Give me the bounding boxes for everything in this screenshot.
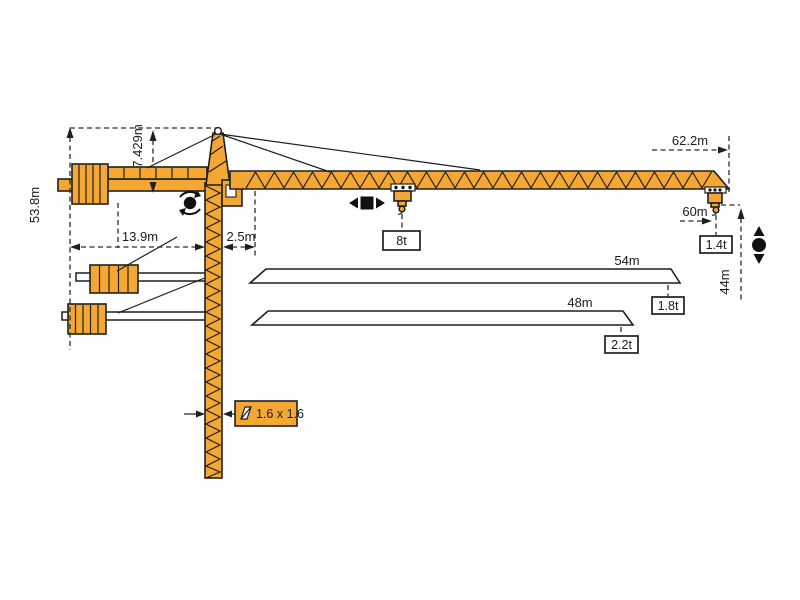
- slewing-arc-top: [180, 192, 197, 197]
- arrow-down: [754, 254, 765, 264]
- trolley-wheel: [401, 186, 404, 189]
- dim-label: 7.429m: [130, 124, 145, 167]
- jib-outline: [252, 311, 633, 325]
- trolley-body: [394, 191, 411, 201]
- trolley-wheel: [713, 188, 716, 191]
- jib-variant-54m: 54m 1.8t: [250, 253, 684, 314]
- trolley-wheel: [408, 186, 411, 189]
- hook: [713, 207, 719, 213]
- apex: [206, 133, 230, 185]
- counterweight-block: [68, 304, 106, 334]
- arrowhead-left: [223, 244, 233, 251]
- arrowhead-right: [195, 244, 205, 251]
- jib-length-label: 48m: [567, 295, 592, 310]
- trolley-wheel: [708, 188, 711, 191]
- hoisting-icon: [752, 226, 766, 264]
- arrowhead-up: [738, 208, 745, 219]
- square: [361, 197, 374, 210]
- trolley-mid: [391, 184, 415, 214]
- counter-jib-pendant: [147, 134, 216, 168]
- load-tip-max-jib: 1.4t: [700, 236, 732, 253]
- jib-variant-48m: 48m 2.2t: [252, 295, 638, 353]
- arrowhead-right: [718, 147, 728, 154]
- counter-jib-rail: [108, 167, 207, 179]
- load-label: 1.8t: [658, 299, 679, 313]
- dim-label: 53.8m: [27, 187, 42, 223]
- dim-label: 13.9m: [122, 229, 158, 244]
- hook: [399, 206, 405, 212]
- trolley-tip: [705, 187, 726, 215]
- arrowhead-left: [223, 411, 232, 418]
- arrowhead-left: [70, 244, 80, 251]
- arrowhead-right: [196, 411, 205, 418]
- counter-jib-variant-1: [76, 237, 206, 293]
- trolley-wheel: [718, 188, 721, 191]
- hook-tip: [398, 212, 402, 214]
- trolley-wheel: [394, 186, 397, 189]
- tower-mast: [205, 183, 222, 478]
- slewing-icon: [179, 190, 201, 216]
- dim-label: 62.2m: [672, 133, 708, 148]
- section-label: 1.6 x 1.6: [256, 407, 304, 421]
- arrowhead-right: [245, 244, 255, 251]
- jib-pendant-long: [220, 134, 480, 170]
- dim-label: 60m: [682, 204, 707, 219]
- jib-length-label: 54m: [614, 253, 639, 268]
- mast-section-callout: 1.6 x 1.6: [184, 401, 304, 426]
- trolley-body: [708, 193, 722, 203]
- dim-label: 44m: [717, 269, 732, 294]
- diagram-canvas: 53.8m 7.429m 13.9m 2.5m 62.2m 60m: [0, 0, 800, 600]
- counterweight-block: [72, 164, 108, 204]
- dim-label: 2.5m: [227, 229, 256, 244]
- hook-block: [711, 203, 719, 207]
- load-label: 8t: [396, 234, 407, 248]
- arrow-right: [376, 198, 385, 209]
- crane-diagram: 53.8m 7.429m 13.9m 2.5m 62.2m 60m: [0, 0, 800, 600]
- dim-max-hook-radius: 60m: [680, 204, 716, 235]
- load-label: 2.2t: [611, 338, 632, 352]
- trolley-travel-icon: [349, 197, 385, 210]
- hook-tip: [712, 213, 716, 215]
- jib-outline: [250, 269, 680, 283]
- slewing-arc-bottom: [183, 209, 200, 214]
- load-max: 8t: [383, 214, 420, 250]
- jib: [230, 171, 729, 189]
- load-label: 1.4t: [706, 238, 727, 252]
- arrow-up: [754, 226, 765, 236]
- counterweight-block: [90, 265, 138, 293]
- arrow-left: [349, 198, 358, 209]
- slewing-dot: [184, 197, 196, 209]
- counter-jib: [58, 164, 207, 204]
- dot: [752, 238, 766, 252]
- arrowhead-up: [150, 130, 157, 141]
- hook-block: [398, 201, 406, 206]
- jib-pendant-short: [220, 134, 330, 172]
